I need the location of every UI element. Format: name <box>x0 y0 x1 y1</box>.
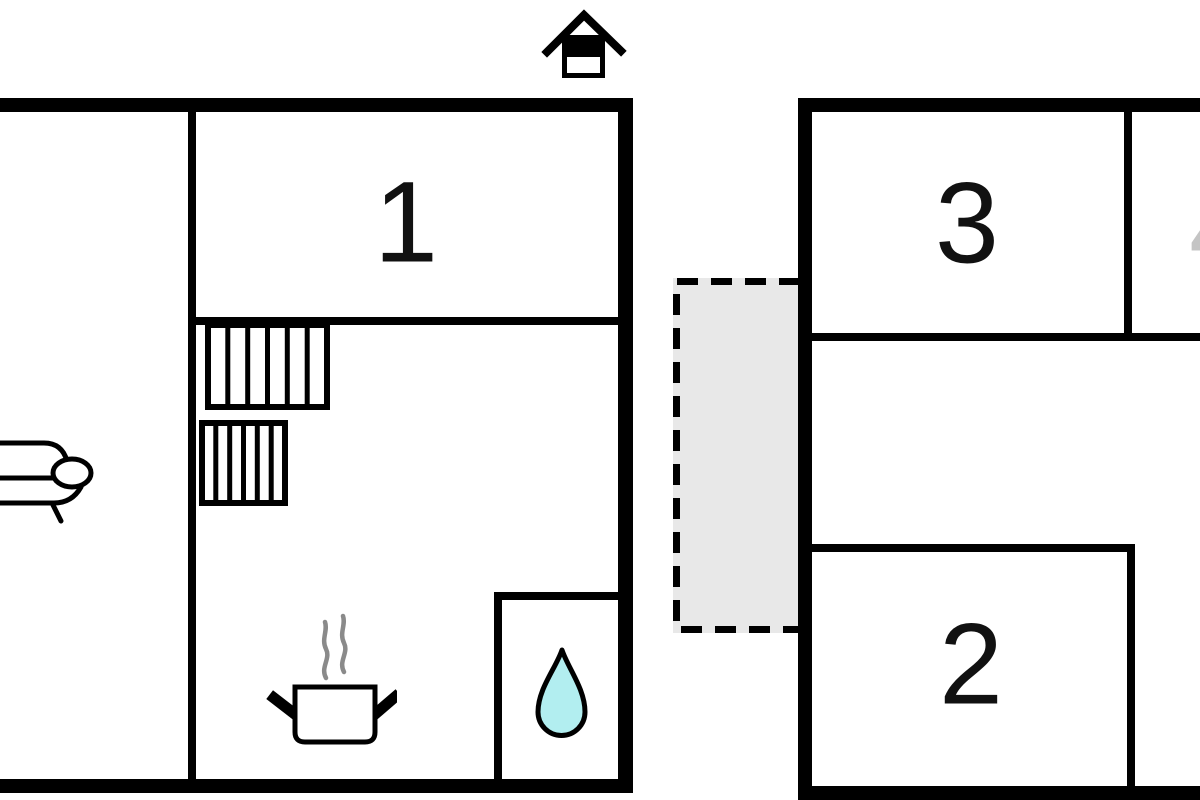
right-building-left-wall <box>798 98 812 800</box>
right-building-bottom-wall <box>798 786 1200 800</box>
stairs-icon <box>205 322 330 410</box>
room-2-right-wall <box>1127 544 1135 786</box>
room-4-partial-label: 4 <box>1189 173 1200 288</box>
stairs-lower-icon <box>199 420 288 506</box>
left-building-right-wall <box>618 98 633 793</box>
bathroom-left-wall <box>494 592 502 779</box>
room-2-label: 2 <box>939 608 1003 723</box>
steam-icon <box>342 616 345 672</box>
left-building-interior-wall <box>188 112 196 779</box>
room-3-label: 3 <box>935 167 999 282</box>
right-building-top-wall <box>798 98 1200 112</box>
steam-icon <box>324 622 327 678</box>
bathroom-top-wall <box>494 592 618 600</box>
terrace-dashed-area <box>670 275 800 636</box>
room-2-top-wall <box>812 544 1135 552</box>
water-drop-icon <box>524 638 600 748</box>
left-building-bottom-wall <box>0 779 633 793</box>
room-3-divider-wall <box>1124 112 1132 341</box>
sofa-icon <box>0 430 96 526</box>
cooking-pot-icon <box>262 605 397 750</box>
room-3-bottom-wall <box>812 333 1200 341</box>
house-icon <box>540 6 630 82</box>
left-building-top-wall <box>0 98 633 112</box>
pot-body <box>295 687 375 742</box>
room-1-label: 1 <box>374 166 438 281</box>
floor-plan: 1 <box>0 0 1200 800</box>
